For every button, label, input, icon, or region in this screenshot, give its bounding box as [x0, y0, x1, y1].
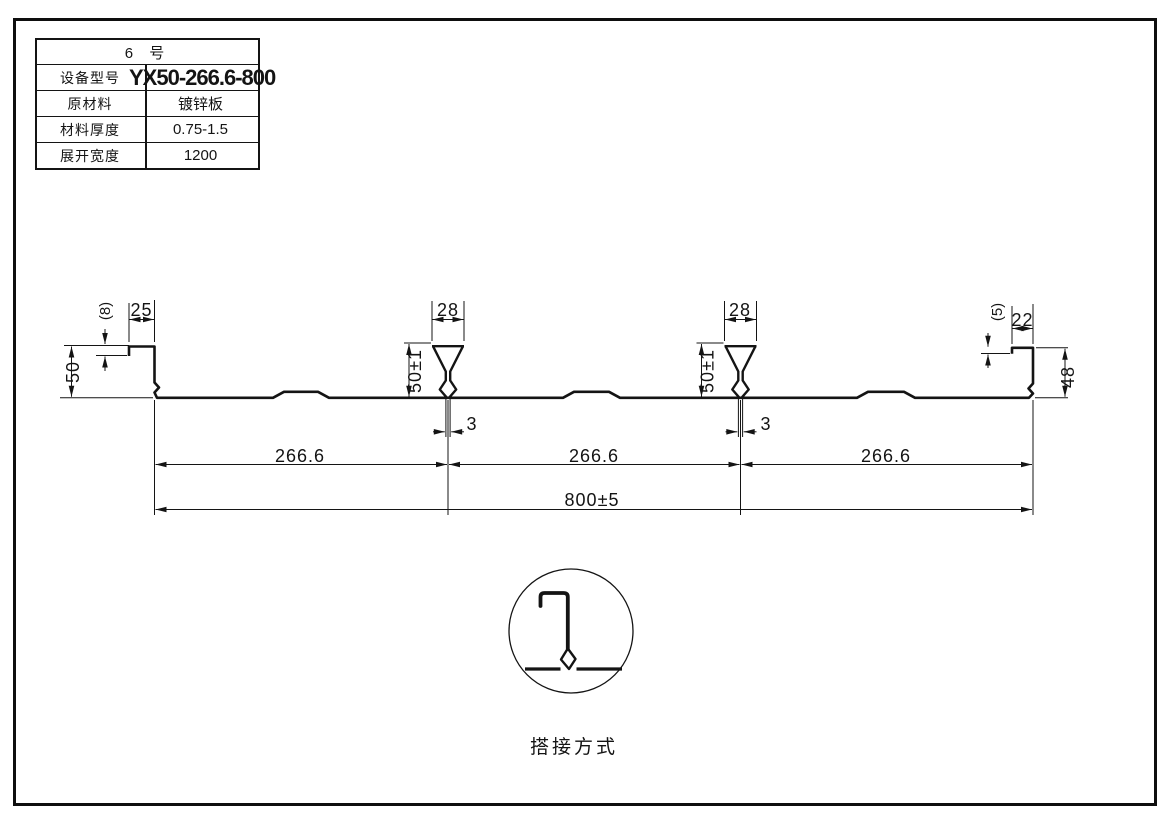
- dim-text-left-height: 50: [63, 361, 83, 383]
- dim-text-span3: 266.6: [861, 446, 911, 466]
- profile-drawing: 50 (8) 25 28 50±1 3 28 50±1 3 (5) 22 48 …: [0, 0, 1169, 827]
- rib-2: [725, 346, 757, 398]
- dim-text-rib2-height: 50±1: [698, 349, 718, 393]
- dim-text-rib1-stem: 3: [466, 414, 477, 434]
- detail-seam-diamond: [561, 649, 576, 670]
- dim-text-left-lip: (8): [97, 302, 114, 320]
- rib-2-right-wall: [741, 346, 755, 398]
- extension-lines: [60, 300, 1068, 515]
- dim-text-overall-width: 800±5: [565, 490, 620, 510]
- dim-text-span1: 266.6: [275, 446, 325, 466]
- detail-caption: 搭接方式: [530, 736, 618, 758]
- rib-1-left-wall: [433, 346, 447, 398]
- profile-outline: [129, 347, 1033, 398]
- rib-1: [432, 346, 464, 398]
- dim-text-rib1-height: 50±1: [405, 349, 425, 393]
- dim-text-right-lip: (5): [989, 303, 1006, 321]
- rib-1-right-wall: [449, 346, 463, 398]
- dim-text-span2: 266.6: [569, 446, 619, 466]
- dim-text-right-height: 48: [1058, 366, 1078, 388]
- dim-text-rib1-width: 28: [437, 300, 459, 320]
- dim-text-rib2-width: 28: [729, 300, 751, 320]
- lap-joint-detail: [509, 569, 633, 693]
- dim-text-right-flange: 22: [1011, 310, 1033, 330]
- dim-text-rib2-stem: 3: [760, 414, 771, 434]
- dim-text-left-flange: 25: [130, 300, 152, 320]
- rib-2-left-wall: [726, 346, 740, 398]
- detail-circle: [509, 569, 633, 693]
- detail-edge-hook: [541, 593, 568, 649]
- drawing-page: 6 号 设备型号 YX50-266.6-800 原材料 镀锌板 材料厚度 0.7…: [0, 0, 1169, 827]
- model-value: YX50-266.6-800: [129, 65, 275, 91]
